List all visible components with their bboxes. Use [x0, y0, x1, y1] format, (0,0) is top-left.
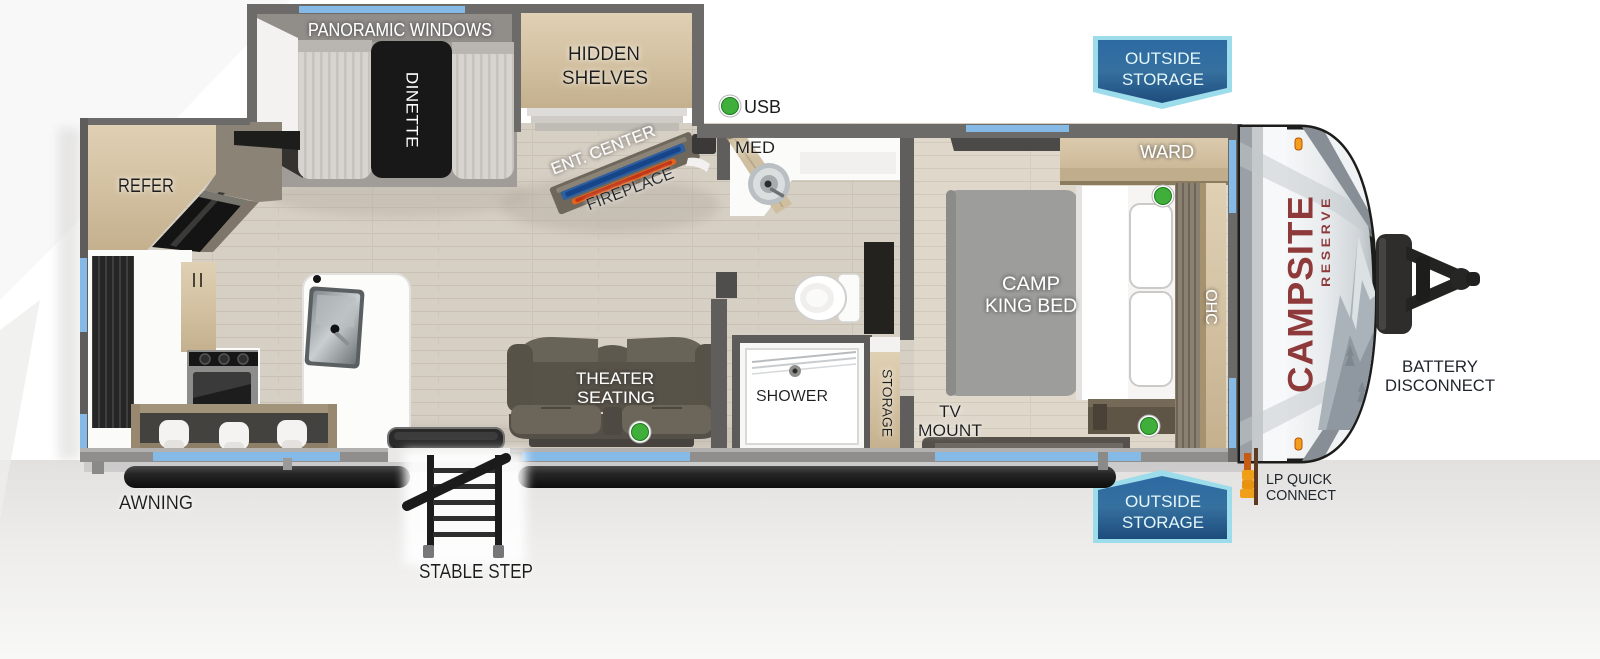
svg-text:SEATING: SEATING [577, 388, 655, 407]
svg-text:CONNECT: CONNECT [1266, 487, 1336, 504]
svg-text:OUTSIDE: OUTSIDE [1125, 492, 1201, 511]
svg-text:TV: TV [939, 402, 961, 421]
svg-text:DISCONNECT: DISCONNECT [1385, 376, 1495, 395]
svg-text:DINETTE: DINETTE [403, 72, 422, 148]
svg-text:AWNING: AWNING [119, 493, 193, 514]
svg-text:PANORAMIC WINDOWS: PANORAMIC WINDOWS [308, 20, 492, 40]
svg-text:MED: MED [735, 138, 775, 157]
svg-text:MOUNT: MOUNT [918, 421, 982, 440]
svg-text:HIDDEN: HIDDEN [568, 44, 640, 65]
svg-text:STORAGE: STORAGE [1122, 513, 1204, 532]
svg-text:OUTSIDE: OUTSIDE [1125, 49, 1201, 68]
svg-text:CAMP: CAMP [1002, 274, 1060, 295]
svg-text:STORAGE: STORAGE [879, 369, 895, 437]
svg-text:BATTERY: BATTERY [1402, 357, 1478, 376]
svg-text:CAMPSITE: CAMPSITE [1281, 195, 1320, 393]
svg-text:KING BED: KING BED [985, 296, 1077, 317]
svg-text:RESERVE: RESERVE [1319, 195, 1333, 287]
svg-text:USB: USB [744, 97, 781, 117]
svg-text:OHC: OHC [1202, 289, 1219, 325]
svg-text:STORAGE: STORAGE [1122, 70, 1204, 89]
svg-text:SHELVES: SHELVES [562, 68, 648, 89]
svg-text:REFER: REFER [118, 176, 174, 197]
svg-text:LP QUICK: LP QUICK [1266, 471, 1332, 488]
svg-text:SHOWER: SHOWER [756, 388, 828, 405]
svg-text:THEATER: THEATER [576, 369, 654, 388]
svg-text:WARD: WARD [1140, 142, 1194, 162]
svg-text:STABLE STEP: STABLE STEP [419, 561, 533, 583]
